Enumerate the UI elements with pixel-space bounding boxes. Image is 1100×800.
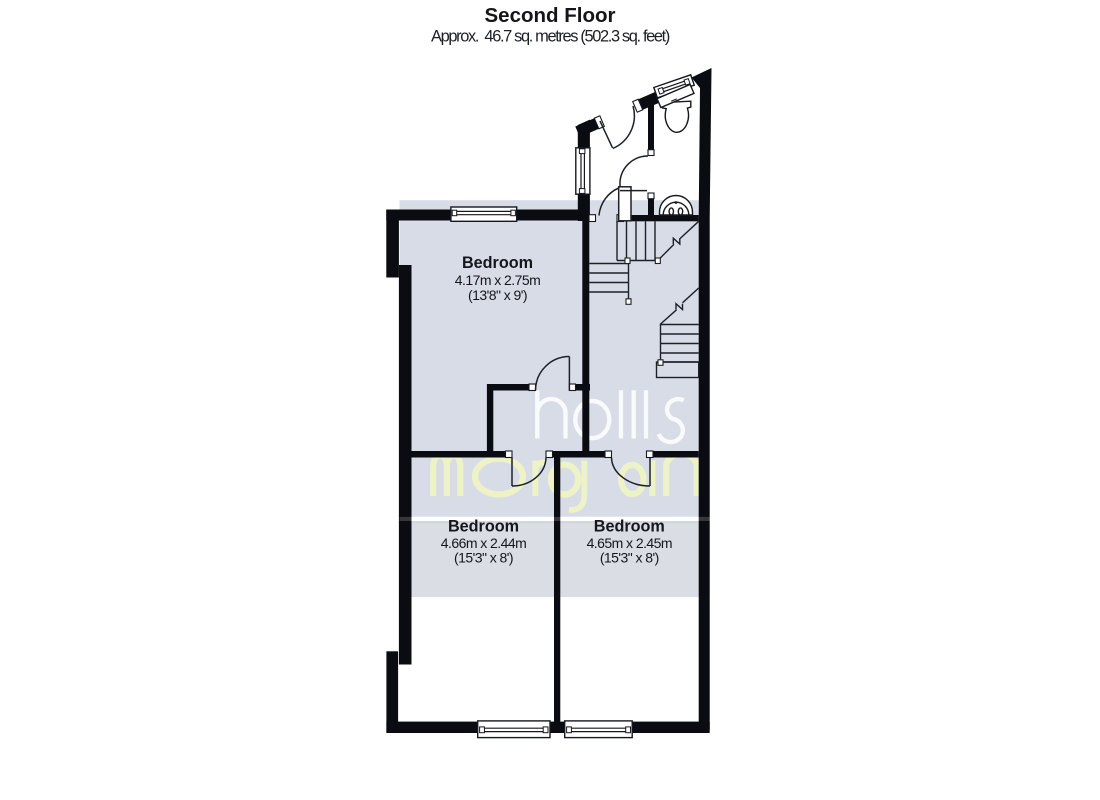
svg-text:4.66m x 2.44m: 4.66m x 2.44m [441,535,526,551]
svg-text:4.17m x 2.75m: 4.17m x 2.75m [455,272,540,288]
svg-text:Bedroom: Bedroom [448,517,519,535]
svg-text:Bedroom: Bedroom [594,517,665,535]
svg-text:(15'3" x 8'): (15'3" x 8') [600,550,659,566]
svg-text:Second Floor: Second Floor [485,4,616,27]
svg-text:4.65m x 2.45m: 4.65m x 2.45m [587,535,672,551]
svg-text:(15'3" x 8'): (15'3" x 8') [454,550,513,566]
svg-text:Bedroom: Bedroom [462,254,533,272]
svg-text:Approx. 46.7 sq. metres (502.: Approx. 46.7 sq. metres (502.3 sq. feet) [431,28,670,46]
svg-text:(13'8" x 9'): (13'8" x 9') [468,287,527,303]
